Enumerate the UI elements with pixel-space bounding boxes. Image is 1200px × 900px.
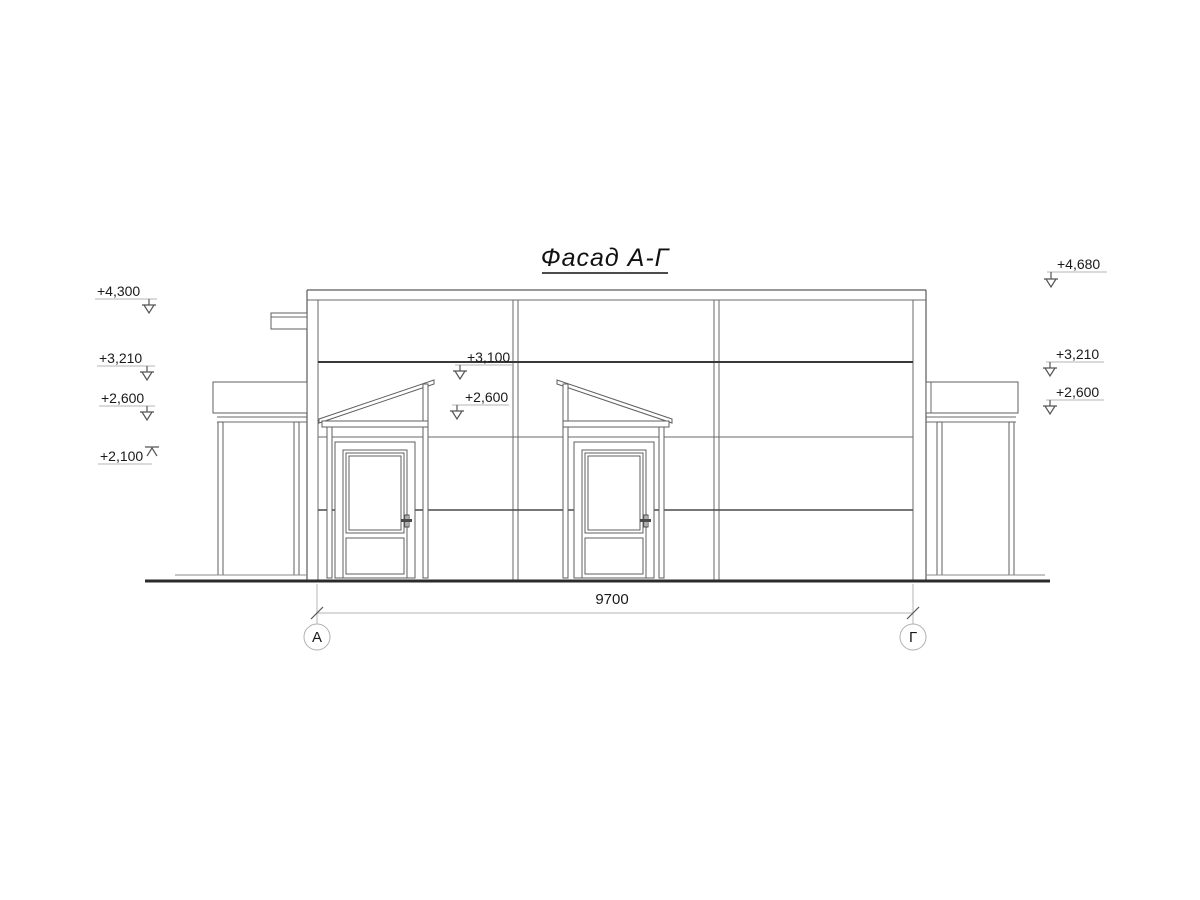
mullion-2 xyxy=(714,300,719,581)
side-canopy-left xyxy=(213,382,307,575)
canopy-1 xyxy=(319,380,434,423)
elevation-mark: +2,600 xyxy=(450,389,509,419)
elevation-mark: +3,100 xyxy=(453,349,512,379)
facade-elevation-drawing: Фасад А-Г xyxy=(0,0,1200,900)
elevation-value: +4,680 xyxy=(1057,256,1100,272)
elevation-value: +3,210 xyxy=(1056,346,1099,362)
elevation-value: +4,300 xyxy=(97,283,140,299)
canopy-2 xyxy=(557,380,672,423)
elevation-value: +3,100 xyxy=(467,349,510,365)
elevation-arrow-down-icon xyxy=(453,365,467,379)
elevation-value: +2,600 xyxy=(465,389,508,405)
canopy-1-post-right xyxy=(423,384,428,578)
axis-label-a: А xyxy=(312,629,322,646)
axis-marker-g: Г xyxy=(900,624,926,650)
elevation-value: +2,600 xyxy=(101,390,144,406)
elevation-marks-left: +4,300 +3,210 +2,600 +2,100 xyxy=(95,283,159,464)
dimension-value: 9700 xyxy=(595,591,628,608)
rooftop-box xyxy=(271,313,307,329)
left-porch-fascia xyxy=(213,382,307,413)
canopy-2-beam xyxy=(563,421,669,427)
elevation-mark: +3,210 xyxy=(97,350,155,380)
door-2-bottom-panel xyxy=(585,538,643,574)
door-1-bottom-panel xyxy=(346,538,404,574)
entrance-2 xyxy=(557,380,672,578)
elevation-mark: +3,210 xyxy=(1043,346,1104,376)
drawing-sheet: Фасад А-Г xyxy=(0,0,1200,900)
elevation-marks-middle: +3,100 +2,600 xyxy=(450,349,512,419)
elevation-arrow-down-icon xyxy=(1044,272,1058,287)
left-porch-post-right xyxy=(294,422,299,575)
elevation-mark: +4,680 xyxy=(1044,256,1107,287)
entrance-1 xyxy=(319,380,434,578)
door-2-glass-inner xyxy=(588,456,640,530)
elevation-arrow-up-icon xyxy=(145,447,159,456)
elevation-value: +2,100 xyxy=(100,448,143,464)
elevation-arrow-down-icon xyxy=(450,405,464,419)
canopy-1-post-left xyxy=(327,423,332,578)
elevation-arrow-down-icon xyxy=(140,366,154,380)
right-porch-fascia xyxy=(926,382,1018,413)
elevation-arrow-down-icon xyxy=(140,406,154,420)
elevation-mark: +4,300 xyxy=(95,283,157,313)
elevation-arrow-down-icon xyxy=(142,299,156,313)
elevation-mark: +2,600 xyxy=(99,390,155,420)
elevation-arrow-down-icon xyxy=(1043,362,1057,376)
axis-marker-a: А xyxy=(304,624,330,650)
axis-label-g: Г xyxy=(909,629,917,646)
left-porch-post-left xyxy=(218,422,223,575)
elevation-arrow-down-icon xyxy=(1043,400,1057,414)
right-porch-post-left xyxy=(937,422,942,575)
elevation-mark: +2,100 xyxy=(98,447,159,464)
door-2 xyxy=(574,442,654,578)
canopy-2-post-left xyxy=(563,384,568,578)
elevation-value: +2,600 xyxy=(1056,384,1099,400)
elevation-mark: +2,600 xyxy=(1043,384,1104,414)
elevation-value: +3,210 xyxy=(99,350,142,366)
mullion-1 xyxy=(513,300,518,581)
door-1 xyxy=(335,442,415,578)
canopy-1-beam xyxy=(322,421,428,427)
canopy-2-post-right xyxy=(659,423,664,578)
door-1-glass-inner xyxy=(349,456,401,530)
right-porch-post-right xyxy=(1009,422,1014,575)
dimension: 9700 А Г xyxy=(304,584,926,650)
title-block: Фасад А-Г xyxy=(541,244,671,273)
drawing-title: Фасад А-Г xyxy=(541,244,671,272)
elevation-marks-right: +4,680 +3,210 +2,600 xyxy=(1043,256,1107,414)
side-canopy-right xyxy=(926,382,1018,575)
